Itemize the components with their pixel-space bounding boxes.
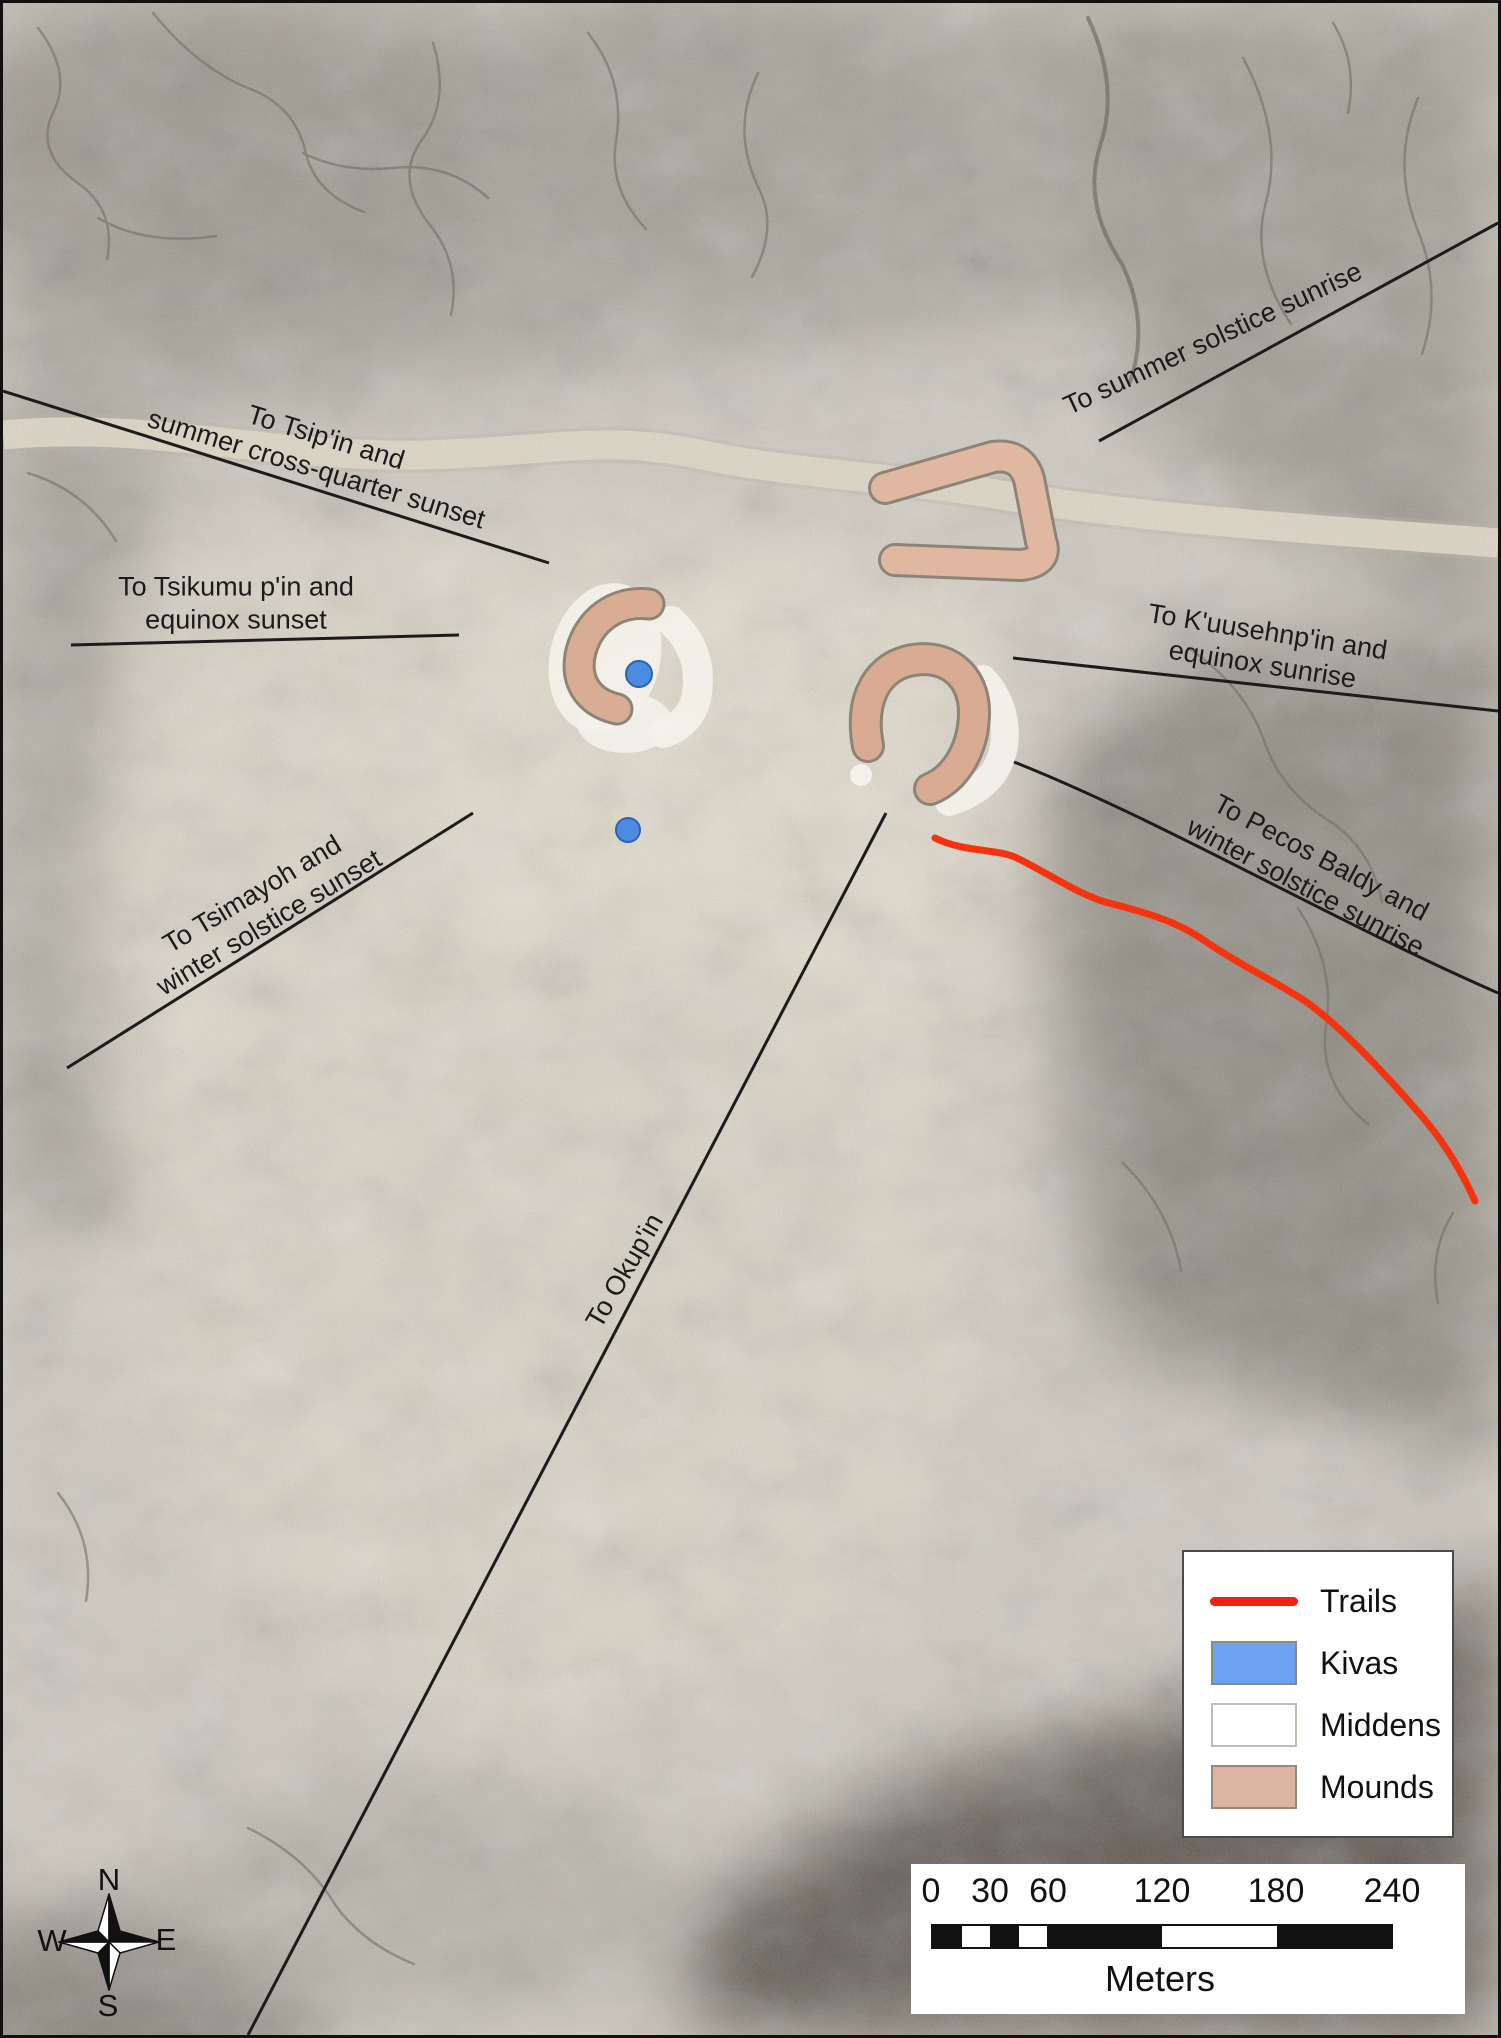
scale-tick: 60 <box>1029 1872 1067 1911</box>
scale-segment <box>962 1926 991 1947</box>
legend-label-kivas: Kivas <box>1320 1645 1398 1682</box>
scale-segment <box>990 1926 1019 1947</box>
mounds-swatch <box>1210 1765 1298 1809</box>
middens-swatch <box>1210 1703 1298 1747</box>
legend-row-kivas: Kivas <box>1210 1632 1452 1694</box>
kiva-plaza <box>626 661 652 687</box>
legend-label-mounds: Mounds <box>1320 1769 1434 1806</box>
kivas-swatch <box>1210 1641 1298 1685</box>
kiva-south <box>616 818 640 842</box>
trail-line-swatch <box>1210 1597 1298 1606</box>
kiva-rect-swatch <box>1211 1641 1297 1685</box>
scale-segment <box>1277 1926 1392 1947</box>
compass-star-icon <box>53 1886 165 1998</box>
scale-tick: 240 <box>1364 1872 1421 1911</box>
legend-row-trails: Trails <box>1210 1570 1452 1632</box>
scale-bar-graphic <box>931 1924 1393 1949</box>
trails-swatch <box>1210 1597 1298 1606</box>
legend-label-middens: Middens <box>1320 1707 1441 1744</box>
scale-unit-label: Meters <box>931 1958 1389 2000</box>
scale-tick: 30 <box>971 1872 1009 1911</box>
scale-tick: 120 <box>1134 1872 1191 1911</box>
midden-east-small-south <box>850 764 872 786</box>
label-line2: equinox sunset <box>118 604 354 637</box>
legend: Trails Kivas Middens Mounds <box>1182 1550 1454 1838</box>
scale-segment <box>1162 1926 1277 1947</box>
site-map: To Tsip'in and summer cross-quarter suns… <box>0 0 1501 2038</box>
sight-line-label-tsikumu: To Tsikumu p'in and equinox sunset <box>118 571 354 638</box>
scale-segment <box>933 1926 962 1947</box>
legend-row-mounds: Mounds <box>1210 1756 1452 1818</box>
scale-bar: 0 30 60 120 180 240 Meters <box>911 1864 1465 2014</box>
scale-tick: 180 <box>1248 1872 1305 1911</box>
label-line1: To Tsikumu p'in and <box>118 571 354 604</box>
scale-tick: 0 <box>922 1872 941 1911</box>
compass-rose: N S W E <box>33 1858 185 2034</box>
legend-label-trails: Trails <box>1320 1583 1397 1620</box>
scale-segment <box>1047 1926 1162 1947</box>
scale-segment <box>1019 1926 1048 1947</box>
legend-row-middens: Middens <box>1210 1694 1452 1756</box>
mound-rect-swatch <box>1211 1765 1297 1809</box>
midden-rect-swatch <box>1211 1703 1297 1747</box>
